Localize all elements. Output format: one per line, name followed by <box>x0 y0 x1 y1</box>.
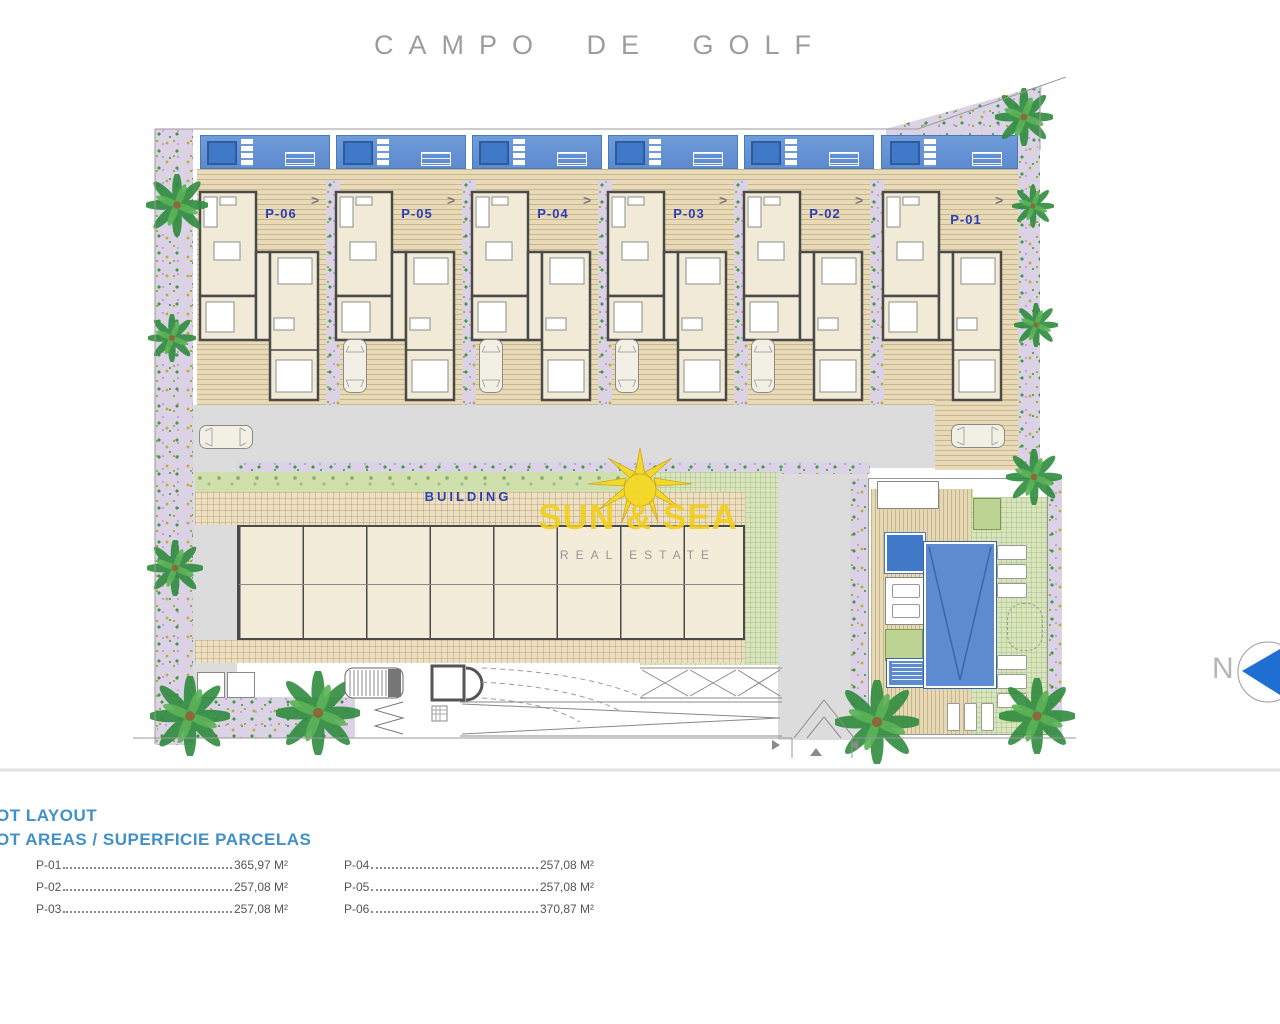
sun-lounger <box>981 703 994 731</box>
pergola <box>877 481 939 509</box>
building-label: BUILDING <box>408 489 528 504</box>
palm-tree <box>1006 449 1062 505</box>
legend-leader <box>371 911 538 913</box>
legend-plot-id: P-04 <box>344 858 369 872</box>
car <box>198 424 254 450</box>
plot-label-p06: P-06 <box>251 206 311 221</box>
legend-plot-id: P-02 <box>36 880 61 894</box>
pool-depth-lines <box>926 544 994 686</box>
plot-pool-p04 <box>472 135 602 169</box>
pool-steps <box>377 139 389 167</box>
pool-stairs-mark <box>693 152 723 166</box>
palm-tree <box>150 676 230 756</box>
pool-steps <box>513 139 525 167</box>
legend-plot-id: P-01 <box>36 858 61 872</box>
legend-leader <box>63 889 232 891</box>
palm-tree <box>1012 185 1054 227</box>
legend-leader <box>63 911 232 913</box>
palm-tree <box>276 671 360 755</box>
sun-lounger <box>997 545 1027 560</box>
plot-label-p05: P-05 <box>387 206 447 221</box>
entry-mark-icon: > <box>995 192 1003 208</box>
palm-tree <box>146 174 208 236</box>
car <box>478 338 504 394</box>
plot-label-p03: P-03 <box>659 206 719 221</box>
pool-steps <box>924 139 936 167</box>
logo-name: SUN & SEA <box>528 498 748 538</box>
plot-label-p02: P-02 <box>795 206 855 221</box>
pool-square <box>479 141 509 165</box>
legend-row-p01: P-01 365,97 M² <box>36 858 288 872</box>
legend-plot-id: P-05 <box>344 880 369 894</box>
legend-title-1: OT LAYOUT <box>0 806 97 826</box>
legend-plot-area: 257,08 M² <box>234 902 288 916</box>
legend-row-p06: P-06 370,87 M² <box>344 902 594 916</box>
legend-plot-area: 257,08 M² <box>540 858 594 872</box>
car <box>750 338 776 394</box>
sun-lounger <box>964 703 977 731</box>
pool-square <box>343 141 373 165</box>
plot-pool-p02 <box>744 135 874 169</box>
building-corridor-line <box>239 584 743 585</box>
logo-subtitle: REAL ESTATE <box>528 548 748 562</box>
legend-row-p04: P-04 257,08 M² <box>344 858 594 872</box>
road <box>193 405 935 468</box>
jacuzzi <box>1007 603 1043 651</box>
planter <box>973 498 1001 530</box>
kids-pool <box>885 533 925 573</box>
legend-leader <box>63 867 232 869</box>
plot-pool-p03 <box>608 135 738 169</box>
legend-plot-id: P-03 <box>36 902 61 916</box>
legend-plot-area: 257,08 M² <box>540 880 594 894</box>
pool-stairs-mark <box>285 152 315 166</box>
entry-mark-icon: > <box>583 192 591 208</box>
main-pool <box>924 542 996 688</box>
legend-plot-area: 257,08 M² <box>234 880 288 894</box>
pool-steps <box>785 139 797 167</box>
pool-square <box>615 141 645 165</box>
palm-tree <box>999 678 1075 754</box>
legend-row-p05: P-05 257,08 M² <box>344 880 594 894</box>
north-label: N <box>1212 652 1234 686</box>
plot-label-p04: P-04 <box>523 206 583 221</box>
legend-plot-area: 370,87 M² <box>540 902 594 916</box>
palm-tree <box>995 88 1053 146</box>
legend-leader <box>371 867 538 869</box>
building-block <box>237 525 745 640</box>
legend-row-p02: P-02 257,08 M² <box>36 880 288 894</box>
entry-mark-icon: > <box>311 192 319 208</box>
page-title: CAMPO DE GOLF <box>280 30 920 61</box>
pool-square <box>751 141 781 165</box>
pool-steps <box>241 139 253 167</box>
plot-label-p01: P-01 <box>936 212 996 227</box>
pool-stairs-mark <box>421 152 451 166</box>
planter <box>885 629 923 661</box>
sun-lounger <box>997 583 1027 598</box>
plot-pool-p05 <box>336 135 466 169</box>
house-p06 <box>198 190 320 405</box>
entry-mark-icon: > <box>447 192 455 208</box>
building-terrace-bottom <box>195 640 745 663</box>
lounger-pad <box>885 577 925 625</box>
car <box>950 423 1006 449</box>
legend-plot-area: 365,97 M² <box>234 858 288 872</box>
palm-tree <box>1014 303 1058 347</box>
legend-plot-id: P-06 <box>344 902 369 916</box>
sun-lounger <box>997 564 1027 579</box>
legend-row-p03: P-03 257,08 M² <box>36 902 288 916</box>
storage-box <box>227 672 255 698</box>
pool-square <box>890 141 920 165</box>
pool-steps <box>649 139 661 167</box>
pool-stairs-mark <box>557 152 587 166</box>
pool-stairs-mark <box>972 152 1002 166</box>
garden-strip-poolarea-left <box>850 478 868 712</box>
legend-title-2: OT AREAS / SUPERFICIE PARCELAS <box>0 830 311 850</box>
palm-tree <box>835 680 919 764</box>
site-plan: CAMPO DE GOLF <box>0 0 1280 1024</box>
entry-mark-icon: > <box>855 192 863 208</box>
plot-pool-p06 <box>200 135 330 169</box>
car <box>614 338 640 394</box>
pool-square <box>207 141 237 165</box>
pool-stairs-mark <box>829 152 859 166</box>
legend-leader <box>371 889 538 891</box>
sun-lounger <box>997 655 1027 670</box>
entry-mark-icon: > <box>719 192 727 208</box>
palm-tree <box>148 314 196 362</box>
car <box>342 338 368 394</box>
sun-lounger <box>947 703 960 731</box>
sun-lounger <box>892 584 920 598</box>
palm-tree <box>147 540 203 596</box>
sun-lounger <box>892 604 920 618</box>
